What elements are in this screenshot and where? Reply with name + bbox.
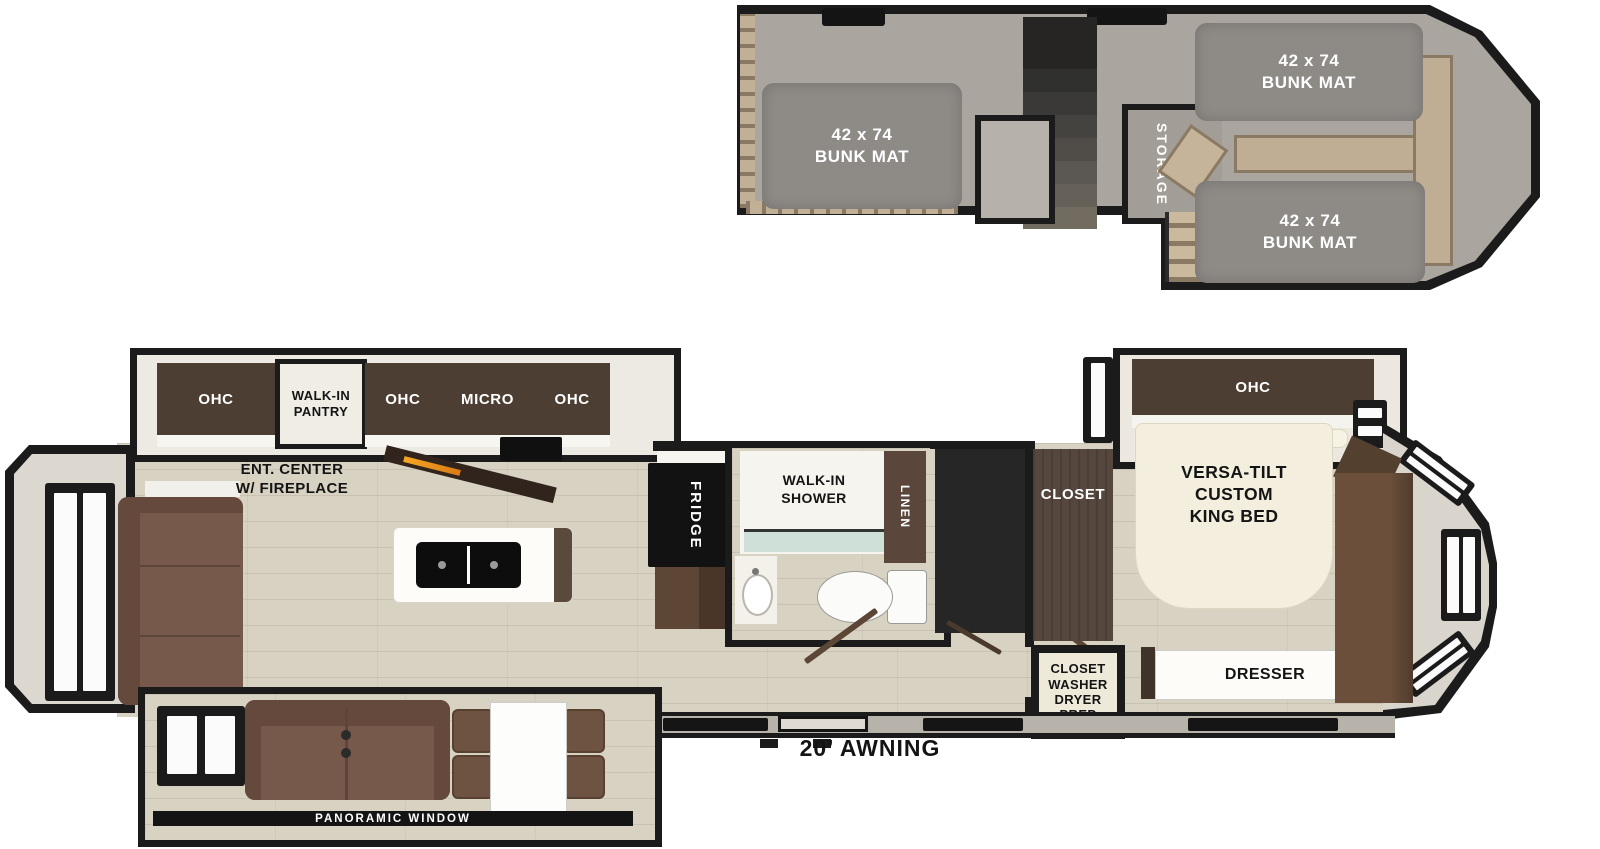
ent-center-label: ENT. CENTER W/ FIREPLACE	[217, 461, 367, 499]
bunk-mat-label: BUNK MAT	[1262, 72, 1356, 94]
window	[663, 718, 768, 731]
dinette-chair	[563, 709, 605, 753]
linen-cabinet: LINEN	[884, 451, 926, 563]
ohc-label: OHC	[385, 391, 420, 408]
ohc-cabinet-rear: OHC	[157, 363, 275, 435]
dresser-label: DRESSER	[1225, 666, 1305, 684]
counter	[365, 435, 610, 447]
faucet	[438, 561, 446, 569]
bunk-mat-label: BUNK MAT	[1263, 232, 1357, 254]
ohc-label: OHC	[555, 391, 590, 408]
bunk-divider-horizontal	[1234, 135, 1425, 173]
cwdp-line: CLOSET	[1048, 661, 1107, 676]
bunk-mat-size: 42 x 74	[1262, 50, 1356, 72]
wall-segment	[930, 441, 1035, 449]
window	[923, 718, 1023, 731]
bedroom-closet: CLOSET	[1033, 449, 1113, 641]
cupholder	[341, 730, 351, 740]
cooktop	[500, 437, 562, 461]
faucet	[490, 561, 498, 569]
theater-seating	[245, 700, 450, 800]
stairwell	[935, 447, 1027, 633]
cupholder	[341, 748, 351, 758]
walk-in-shower: WALK-IN SHOWER	[740, 451, 888, 554]
bath-vanity	[735, 556, 777, 624]
bathroom: WALK-IN SHOWER LINEN	[725, 441, 951, 647]
loft-landing	[975, 115, 1055, 224]
kitchen-slideout: OHC WALK-IN PANTRY OHC MICRO OHC	[130, 348, 681, 462]
awning-label: 20’ AWNING	[705, 735, 1035, 762]
skylight	[1087, 8, 1167, 25]
bunk-mat-size: 42 x 74	[815, 124, 909, 146]
front-cap-window-middle	[1441, 529, 1481, 621]
bedroom-window	[1083, 357, 1113, 443]
kitchen-island	[393, 527, 573, 603]
double-sink	[416, 542, 521, 588]
dinette-chair	[563, 755, 605, 799]
linen-label: LINEN	[898, 485, 912, 529]
pantry-label-line1: WALK-IN	[292, 388, 350, 404]
cwdp-line: DRYER	[1048, 692, 1107, 707]
front-wardrobe	[1335, 473, 1413, 703]
entry-door	[778, 716, 868, 732]
king-bed: VERSA-TILT CUSTOM KING BED	[1135, 423, 1333, 609]
ohc-label: OHC	[1235, 379, 1270, 396]
dinette-chair	[452, 709, 494, 753]
ohc-cabinet-bedroom: OHC	[1132, 359, 1374, 415]
ohc-micro-cabinet: OHC MICRO OHC	[365, 363, 610, 435]
faucet	[752, 568, 759, 575]
bunk-mat-front-bottom: 42 x 74 BUNK MAT	[1195, 181, 1425, 283]
cwdp-line: WASHER	[1048, 677, 1107, 692]
dinette-table	[490, 702, 567, 816]
skylight	[822, 8, 885, 26]
bed-label-line: KING BED	[1136, 506, 1332, 528]
living-slideout: PANORAMIC WINDOW	[138, 687, 662, 847]
bunk-mat-left: 42 x 74 BUNK MAT	[762, 83, 962, 209]
closet-label: CLOSET	[1041, 486, 1105, 503]
slideout-side-window	[157, 706, 245, 786]
rv-floorplan-canvas: 42 x 74 BUNK MAT STORAGE	[0, 0, 1600, 849]
panoramic-window-label: PANORAMIC WINDOW	[315, 813, 471, 825]
pantry-label-line2: PANTRY	[292, 404, 350, 420]
micro-label: MICRO	[461, 391, 514, 408]
main-floorplan: OHC WALK-IN PANTRY OHC MICRO OHC	[5, 345, 1497, 845]
bunk-mat-size: 42 x 74	[1263, 210, 1357, 232]
bunk-mat-label: BUNK MAT	[815, 146, 909, 168]
dresser-end-cap	[1141, 647, 1155, 699]
ent-center-line2: W/ FIREPLACE	[217, 480, 367, 499]
walk-in-pantry: WALK-IN PANTRY	[275, 359, 367, 449]
bed-label-line: VERSA-TILT	[1136, 462, 1332, 484]
bunk-mat-front-top: 42 x 74 BUNK MAT	[1195, 23, 1423, 121]
panoramic-window: PANORAMIC WINDOW	[153, 811, 633, 826]
shower-label-line1: WALK-IN	[781, 471, 846, 489]
bath-sink	[742, 574, 773, 616]
window	[1188, 718, 1338, 731]
sofa	[118, 497, 243, 705]
ohc-label: OHC	[198, 391, 233, 408]
bed-label-line: CUSTOM	[1136, 484, 1332, 506]
dinette-chair	[452, 755, 494, 799]
counter	[157, 435, 275, 447]
loft-ladder-edge	[740, 14, 755, 208]
rear-window	[45, 483, 115, 701]
ent-center-line1: ENT. CENTER	[217, 461, 367, 480]
loft-floorplan: 42 x 74 BUNK MAT STORAGE	[737, 5, 1540, 290]
fridge-label: FRIDGE	[687, 481, 704, 550]
shower-label-line2: SHOWER	[781, 489, 846, 507]
